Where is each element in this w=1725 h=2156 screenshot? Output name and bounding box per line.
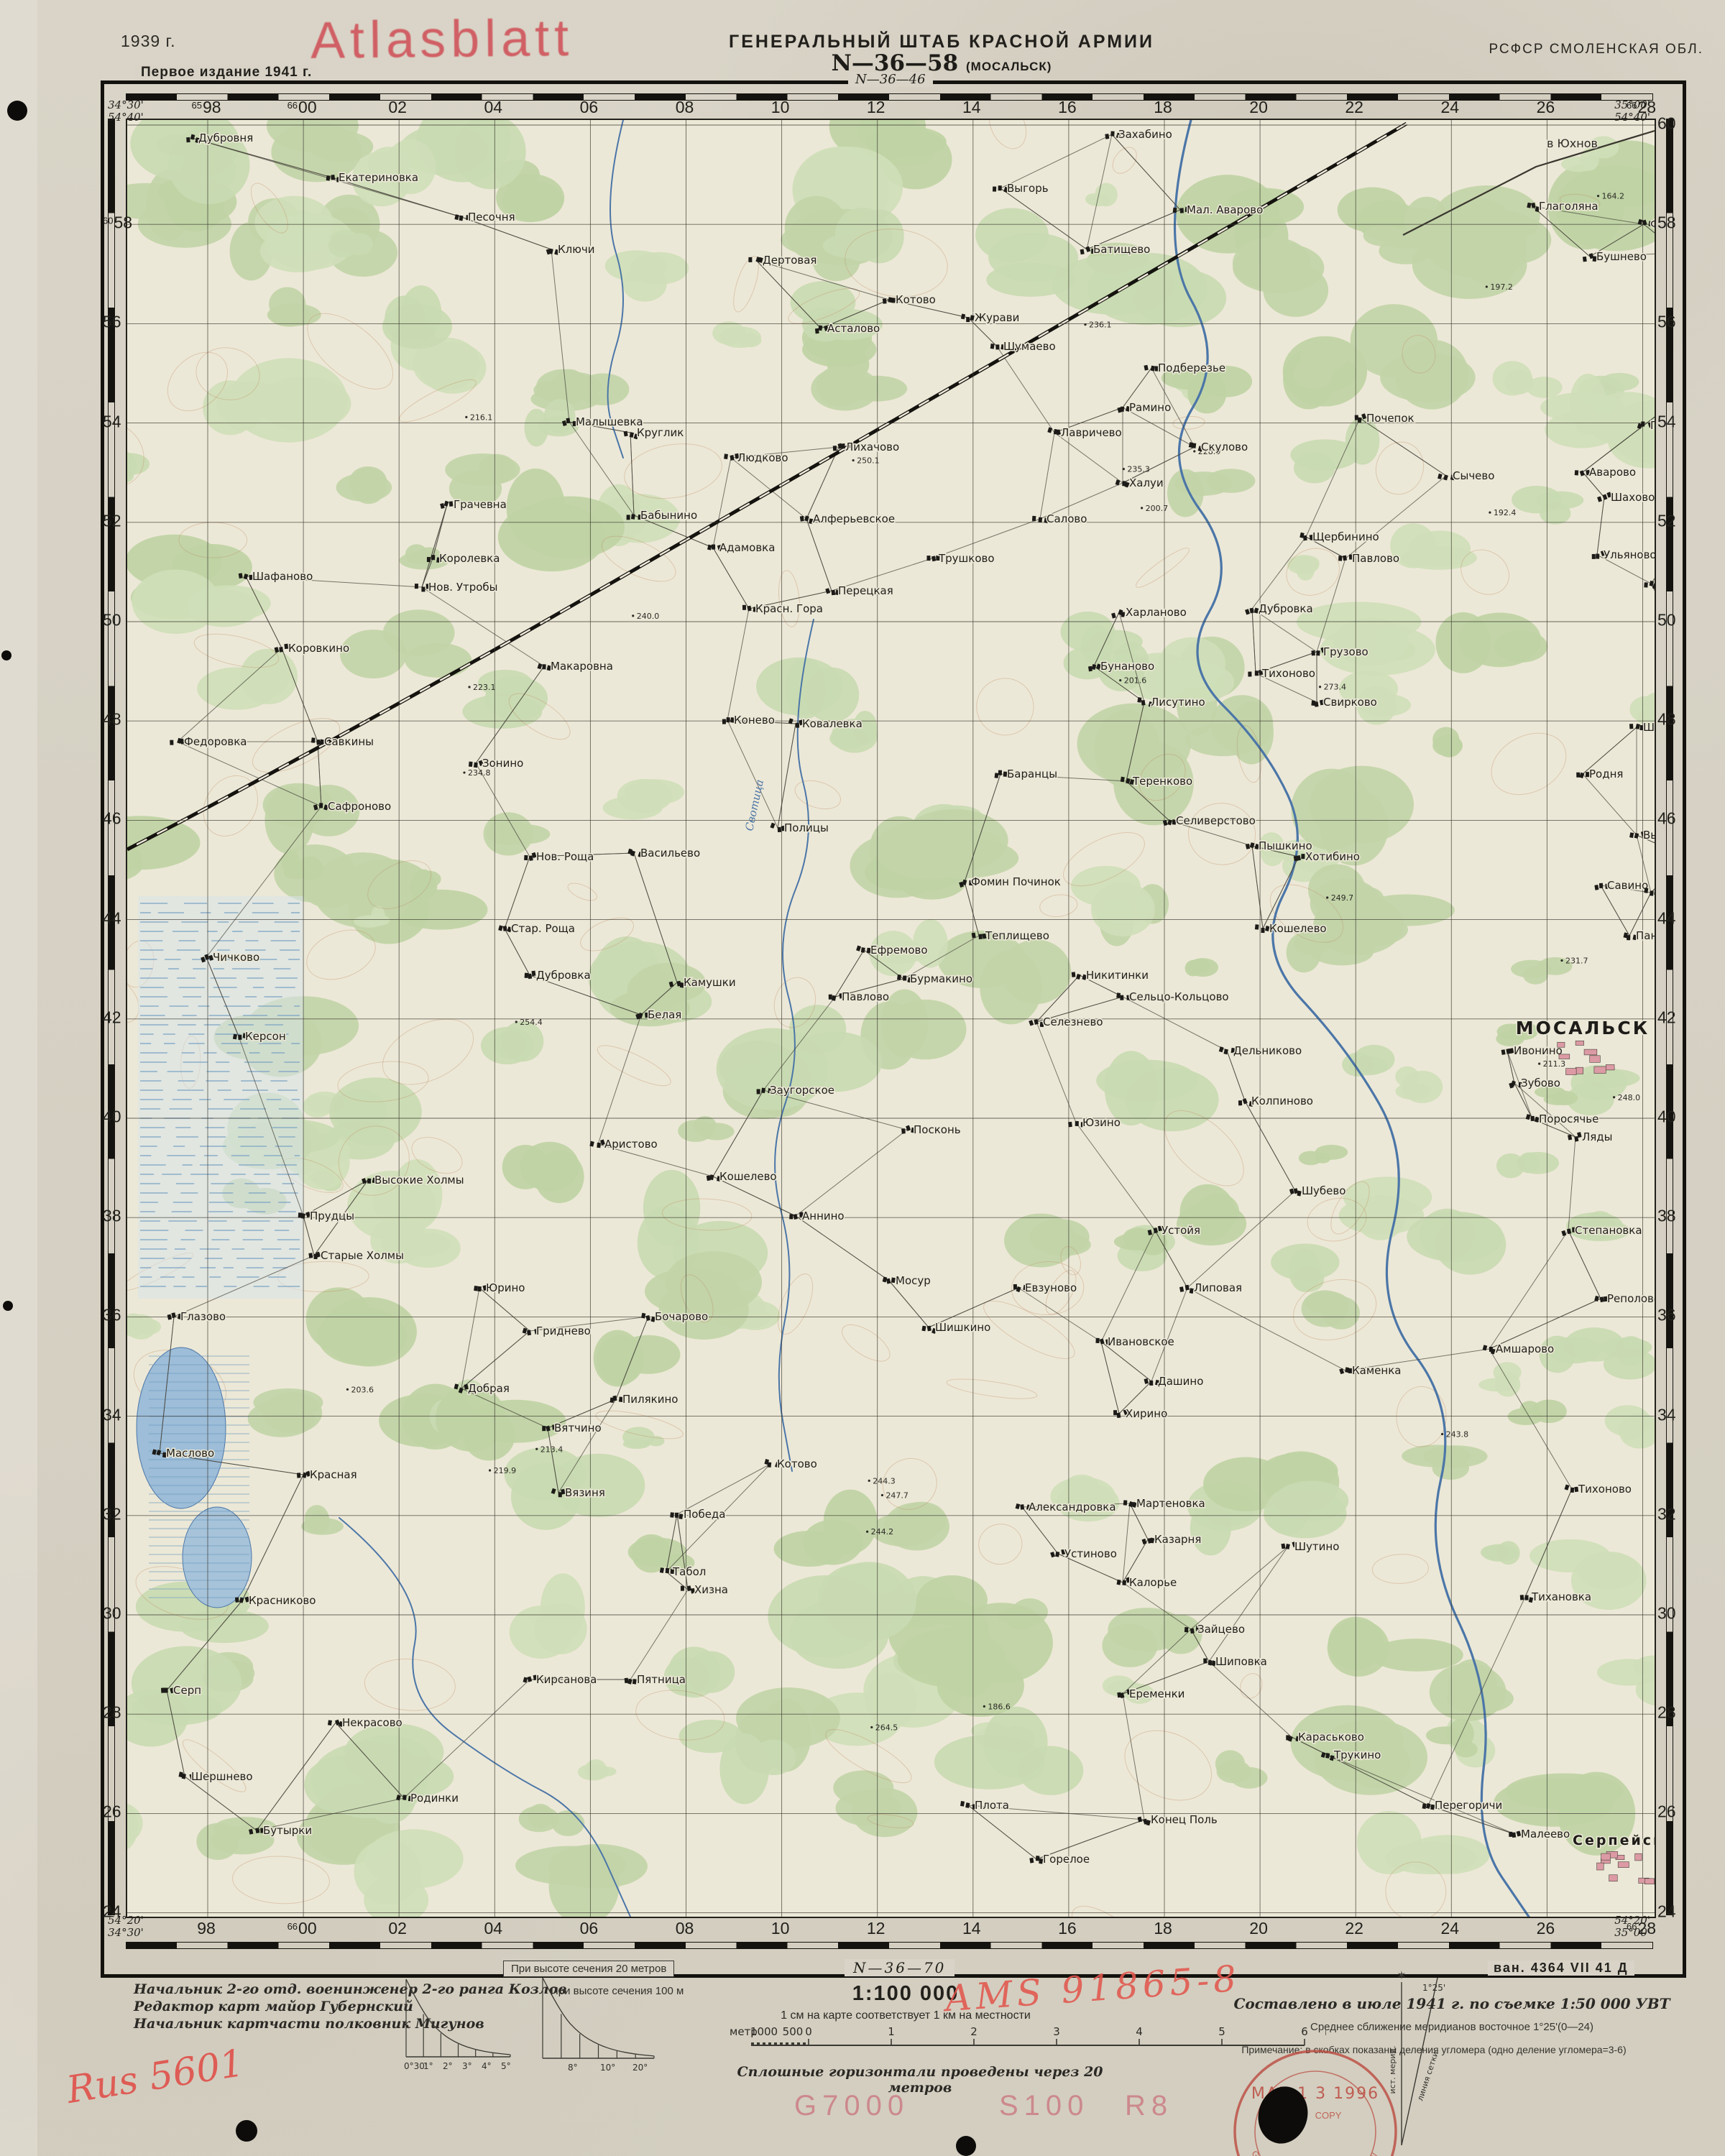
settlement-label: Хотибино	[1305, 850, 1360, 863]
river-label: Свотица	[742, 778, 766, 832]
svg-text:200.7: 200.7	[1146, 504, 1169, 513]
road-destination-label: в Юхнов	[1547, 137, 1598, 150]
settlement-label: Евзуново	[1025, 1281, 1077, 1294]
settlement-label: Грачевна	[454, 498, 507, 511]
svg-text:192.4: 192.4	[1494, 508, 1517, 517]
settlement-label: Батищево	[1093, 243, 1150, 256]
settlement-label: Высоково	[1643, 829, 1655, 842]
settlement-label: Почепок	[1366, 412, 1414, 425]
svg-text:216.1: 216.1	[470, 413, 493, 422]
slope-caption-20m: При высоте сечения 20 метров	[503, 1961, 674, 1977]
settlement-label: Чичково	[213, 951, 259, 964]
svg-text:✶: ✶	[1397, 1970, 1406, 1982]
grid-easting-top: 10	[771, 98, 790, 117]
grid-northing-left: 50	[103, 611, 121, 630]
settlement-label: Победа	[684, 1508, 726, 1521]
general-staff-title: ГЕНЕРАЛЬНЫЙ ШТАБ КРАСНОЙ АРМИИ	[690, 32, 1193, 52]
settlement-label: Керсон	[245, 1030, 286, 1043]
settlement-label: Бочарово	[655, 1310, 708, 1323]
settlement-label: Устиново	[1064, 1547, 1117, 1560]
settlement-label: Шиповка	[1215, 1655, 1267, 1668]
settlement-label: Полицы	[784, 821, 829, 834]
settlement-label: Круглик	[637, 426, 684, 439]
punch-hole	[1, 650, 11, 660]
settlement-label: Малеево	[1521, 1828, 1570, 1841]
settlement-label: Васильево	[640, 847, 700, 860]
grid-easting-bottom: 06	[580, 1919, 599, 1938]
settlement-label: Конево	[734, 714, 775, 727]
settlement-label: Коровкино	[288, 642, 349, 655]
settlement-label: Халуи	[1129, 476, 1164, 489]
settlement-label: Мартеновка	[1136, 1497, 1205, 1510]
grid-northing-left: 44	[103, 908, 121, 928]
settlement-label: Глаголяна	[1539, 200, 1598, 213]
accession-stamp-r8: R8	[1125, 2090, 1173, 2122]
settlement-label: Кошелево	[719, 1170, 777, 1183]
atlasblatt-stamp: Atlasblatt	[310, 9, 574, 70]
accession-stamp-g7000: G7000	[794, 2090, 909, 2122]
settlement-label: Шахово	[1611, 491, 1655, 504]
settlement-label: Дубровка	[536, 969, 591, 982]
settlement-label: Пышкино	[1259, 839, 1312, 852]
settlement-label: Свирково	[1323, 696, 1377, 709]
grid-northing-right: 28	[1657, 1703, 1676, 1723]
settlement-label: Фомин Починок	[971, 875, 1061, 888]
punch-hole	[236, 2120, 257, 2142]
settlement-label: Кошелево	[1269, 922, 1327, 935]
settlement-label: Асталово	[827, 322, 880, 335]
marsh-layer	[137, 896, 303, 1608]
settlement-label: Казарня	[1154, 1533, 1201, 1546]
grid-northing-left: 36	[103, 1306, 121, 1325]
settlement-label: Скулово	[1201, 441, 1248, 453]
town-label: МОСАЛЬСК	[1516, 1018, 1650, 1038]
town-Серпейск: Серпейск	[1573, 1833, 1655, 1884]
svg-text:244.3: 244.3	[873, 1476, 896, 1485]
grid-northing-left: 32	[103, 1504, 121, 1524]
settlement-label: Бурмакино	[910, 972, 972, 985]
grid-northing-right: 50	[1657, 611, 1676, 630]
settlement-label: Ковалевка	[802, 717, 862, 730]
settlement-label: Хирино	[1126, 1407, 1167, 1420]
slope-caption-100m: При высоте сечения 100 м	[551, 1985, 684, 1997]
svg-text:211.3: 211.3	[1543, 1059, 1566, 1069]
settlement-label: Журави	[975, 311, 1019, 324]
settlement-label: Каменка	[1352, 1364, 1401, 1377]
settlement-label: Теренково	[1132, 775, 1192, 788]
sheet-city: (МОСАЛЬСК)	[966, 60, 1052, 73]
settlement-label: Теплищево	[985, 929, 1049, 942]
settlement-label: Аристово	[604, 1138, 658, 1151]
svg-text:236.1: 236.1	[1089, 321, 1112, 330]
grid-easting-bottom: 18	[1154, 1919, 1172, 1938]
grid-northing-right: 26	[1657, 1802, 1676, 1822]
settlement-label: Еременки	[1129, 1687, 1184, 1700]
settlement-label: Захабино	[1118, 128, 1172, 141]
grid-easting-bottom: 04	[484, 1919, 503, 1938]
settlement-label: Ляды	[1582, 1130, 1613, 1143]
grid-easting-top: 18	[1154, 98, 1172, 117]
settlement-label: Никитинки	[1086, 969, 1149, 982]
settlement-label: Грузово	[1323, 645, 1368, 658]
svg-text:248.0: 248.0	[1618, 1093, 1641, 1102]
settlement-label: Бушнево	[1596, 250, 1647, 263]
library-date-stamp: MAR 1 3 1996COPYGEOGRAPHY & MAP DIVISION	[1207, 2047, 1423, 2156]
settlement-label: Екатериновка	[339, 171, 418, 184]
handwritten-accession: Rus 5601	[64, 2042, 247, 2112]
svg-text:197.2: 197.2	[1490, 282, 1513, 292]
grid-easting-top: 16	[1058, 98, 1077, 117]
settlement-label: Дашино	[1158, 1375, 1203, 1388]
settlement-label: Федоровка	[184, 735, 247, 748]
settlement-label: Перегоричи	[1435, 1799, 1502, 1812]
svg-text:500: 500	[783, 2025, 804, 2038]
settlement-label: Кирсанова	[536, 1673, 597, 1686]
grid-easting-top: 26	[1537, 98, 1555, 117]
settlement-label: Дубровня	[198, 132, 253, 144]
svg-text:250.1: 250.1	[857, 456, 880, 466]
settlement-label: Лисутино	[1151, 696, 1205, 709]
settlement-label: Малышевка	[576, 415, 643, 428]
settlement-label: Нов. Утробы	[428, 581, 498, 594]
map-year: 1939 г.	[121, 32, 176, 51]
settlement-label: Селезнево	[1043, 1015, 1103, 1028]
grid-northing-left: 46	[103, 809, 121, 829]
settlement-label: Зонино	[482, 757, 523, 770]
minute-ticks-top	[126, 93, 1653, 101]
settlement-label: Паньшино	[1636, 929, 1655, 942]
settlement-label: Шубево	[1302, 1184, 1345, 1197]
settlement-label: Адамовка	[719, 541, 775, 554]
settlement-label: Алферьевское	[813, 512, 895, 525]
settlement-label: Калорье	[1129, 1576, 1177, 1589]
settlement-label: Шафаново	[252, 570, 313, 583]
settlement-label: Вязиня	[565, 1486, 605, 1499]
grid-easting-top: 06	[580, 98, 599, 117]
grid-northing-right: 34	[1657, 1405, 1676, 1424]
settlement-label: Трушково	[938, 552, 995, 565]
settlement-label: Амшарово	[1496, 1342, 1554, 1355]
settlement-label: Котово	[777, 1457, 817, 1470]
settlement-label: Гриднево	[536, 1325, 591, 1337]
settlement-label: Людково	[737, 451, 788, 464]
settlement-label: Савино	[1607, 879, 1648, 892]
settlement-label: Дертовая	[763, 254, 816, 267]
settlement-label: Вятчино	[554, 1422, 602, 1434]
settlement-label: Прудцы	[310, 1210, 354, 1222]
settlement-label: Сафроново	[328, 800, 391, 813]
svg-text:1°25': 1°25'	[1422, 1983, 1445, 1993]
svg-text:201.6: 201.6	[1124, 676, 1147, 686]
settlement-label: Серп	[173, 1684, 201, 1697]
settlement-label: Нов. Роща	[536, 850, 594, 863]
settlement-label: Юрино	[486, 1281, 525, 1294]
settlement-label: Родня	[1589, 768, 1623, 780]
grid-northing-left: 52	[103, 511, 121, 530]
settlement-label: Горелое	[1043, 1853, 1090, 1866]
settlement-label: Зубово	[1521, 1077, 1560, 1089]
edition-label: Первое издание 1941 г.	[135, 65, 318, 80]
imprint-code: ван. 4364 VII 41 Д	[1488, 1961, 1634, 1976]
compiled-note: Составлено в июле 1941 г. по съемке 1:50…	[1186, 1995, 1718, 2012]
convergence-note: Среднее сближение меридианов восточное 1…	[1186, 2021, 1718, 2033]
grid-easting-bottom: 10	[771, 1919, 790, 1938]
grid-northing-right: 60	[1657, 114, 1676, 134]
settlement-label: Липовая	[1194, 1281, 1242, 1294]
grid-easting-bottom: 6600	[287, 1919, 317, 1938]
svg-text:2°: 2°	[443, 2061, 453, 2071]
grid-easting-bottom: 98	[197, 1919, 216, 1938]
settlement-label: Добрая	[468, 1382, 510, 1395]
settlement-label: Шершнево	[191, 1770, 253, 1783]
settlement-label: Камушки	[684, 976, 736, 989]
settlement-label: Шумаево	[1003, 340, 1056, 353]
grid-northing-left: 56	[103, 313, 121, 332]
sheet-number: N—36—58 (МОСАЛЬСК)	[690, 50, 1193, 76]
settlement-label: Щербинино	[1312, 530, 1379, 543]
svg-text:243.8: 243.8	[1446, 1430, 1469, 1439]
svg-text:219.9: 219.9	[494, 1466, 517, 1475]
svg-text:4°: 4°	[482, 2061, 492, 2071]
settlement-label: Хизна	[694, 1583, 728, 1596]
settlement-label: Табол	[672, 1565, 706, 1578]
grid-northing-left: 38	[103, 1207, 121, 1226]
settlement-label: Степановка	[1575, 1224, 1642, 1237]
settlement-label: Александровка	[1029, 1501, 1116, 1514]
grid-easting-bottom: 14	[962, 1919, 981, 1938]
settlement-label: Гнездилово	[1650, 419, 1655, 432]
settlement-label: Баранцы	[1007, 768, 1057, 780]
svg-text:1000: 1000	[750, 2025, 778, 2038]
settlement-label: Шахово-Княжево	[1643, 721, 1655, 734]
settlement-label: Выгорь	[1007, 182, 1049, 195]
grid-northing-right: 56	[1657, 313, 1676, 332]
settlement-label: Сельцо-Кольцово	[1129, 990, 1229, 1003]
grid-northing-left: 28	[103, 1703, 121, 1723]
settlement-label: Ивановское	[1108, 1335, 1174, 1348]
corner-coord-top-left: 34°30'54°40'	[108, 99, 144, 124]
grid-northing-right: 30	[1657, 1604, 1676, 1623]
svg-text:213.4: 213.4	[540, 1445, 563, 1454]
settlement-label: Трукино	[1333, 1749, 1381, 1761]
settlement-label: Тихоново	[1578, 1483, 1632, 1496]
settlement-label: Сычево	[1453, 469, 1494, 482]
svg-text:10°: 10°	[600, 2063, 615, 2073]
grid-northing-left: 26	[103, 1802, 121, 1822]
punch-hole	[956, 2136, 976, 2156]
svg-text:3: 3	[1053, 2025, 1060, 2038]
map-sheet: 1939 г. Atlasblatt ГЕНЕРАЛЬНЫЙ ШТАБ КРАС…	[0, 0, 1725, 2156]
forest-layer	[127, 120, 1655, 1917]
grid-northing-right: 38	[1657, 1207, 1676, 1226]
grid-easting-bottom: 16	[1058, 1919, 1077, 1938]
settlement-label: Поросячье	[1539, 1112, 1598, 1125]
svg-text:273.4: 273.4	[1324, 683, 1347, 692]
grid-northing-right: 24	[1657, 1902, 1676, 1921]
settlement-label: Заугорское	[770, 1084, 834, 1097]
svg-text:1: 1	[888, 2025, 895, 2038]
grid-easting-top: 6598	[191, 98, 221, 117]
settlement-label: Юзино	[1082, 1116, 1121, 1129]
grid-easting-bottom: 02	[388, 1919, 407, 1938]
grid-easting-bottom: 12	[867, 1919, 885, 1938]
grid-northing-right: 32	[1657, 1504, 1676, 1524]
grid-easting-top: 6600	[287, 98, 317, 117]
grid-northing-left: 30	[103, 1604, 121, 1623]
settlement-label: Пилякино	[622, 1393, 678, 1406]
svg-text:203.6: 203.6	[351, 1385, 374, 1394]
corner-coord-bottom-left: 54°20'34°30'	[108, 1915, 144, 1939]
region-label: РСФСР СМОЛЕНСКАЯ ОБЛ.	[1489, 42, 1703, 57]
settlement-label: Старые Холмы	[321, 1249, 404, 1262]
corner-coord-bottom-right: 54°20'35°00'	[1603, 1915, 1650, 1939]
settlement-label: Лавричево	[1061, 426, 1122, 439]
svg-text:235.3: 235.3	[1127, 465, 1150, 474]
grid-easting-top: 08	[676, 98, 694, 117]
settlement-label: Ключи	[558, 243, 594, 256]
grid-easting-top: 24	[1441, 98, 1460, 117]
settlement-label: Красн. Гора	[755, 602, 823, 615]
settlement-label: Караськово	[1298, 1731, 1364, 1743]
settlement-label: Некрасово	[342, 1716, 402, 1729]
settlement-label: Мосур	[896, 1274, 931, 1287]
settlement-label: Красниково	[249, 1594, 316, 1607]
svg-text:164.2: 164.2	[1602, 192, 1625, 201]
settlement-label: Реполово	[1607, 1292, 1655, 1305]
svg-text:20°: 20°	[632, 2063, 648, 2073]
grid-northing-right: 58	[1657, 213, 1676, 233]
settlement-label: Тихоново	[1261, 667, 1315, 680]
settlement-label: Тихановка	[1531, 1590, 1591, 1603]
grid-northing-right: 48	[1657, 710, 1676, 729]
settlement-label: Красная	[310, 1468, 357, 1481]
town-label: Серпейск	[1573, 1833, 1655, 1848]
grid-northing-left: 34	[103, 1405, 121, 1424]
settlement-label: Пятница	[637, 1673, 686, 1686]
settlement-label: Аннино	[802, 1210, 845, 1222]
settlement-label: Глазово	[180, 1310, 226, 1323]
settlement-label: Бунаново	[1100, 660, 1154, 673]
grid-northing-right: 44	[1657, 908, 1676, 928]
settlement-label: Мал. Аварово	[1187, 203, 1263, 216]
settlement-label: Филино	[1650, 218, 1655, 231]
settlement-label: Стар. Роща	[511, 922, 575, 935]
grid-northing-right: 54	[1657, 412, 1676, 431]
svg-text:240.0: 240.0	[637, 612, 660, 621]
grid-northing-right: 40	[1657, 1107, 1676, 1127]
grid-easting-top: 22	[1345, 98, 1363, 117]
grid-easting-top: 04	[484, 98, 503, 117]
svg-text:1°: 1°	[423, 2061, 433, 2071]
settlement-label: Королевка	[439, 552, 500, 565]
svg-text:247.7: 247.7	[885, 1491, 908, 1500]
settlement-label: Макаровна	[551, 660, 613, 673]
settlement-label: Котово	[896, 293, 936, 306]
settlement-label: Ивонино	[1514, 1044, 1563, 1057]
settlement-label: Высокие Холмы	[374, 1174, 464, 1187]
grid-easting-bottom: 20	[1249, 1919, 1268, 1938]
grid-northing-right: 46	[1657, 809, 1676, 829]
grid-easting-bottom: 22	[1345, 1919, 1363, 1938]
grid-northing-left: 6058	[103, 213, 132, 233]
punch-hole	[3, 1301, 13, 1311]
svg-text:264.5: 264.5	[875, 1723, 898, 1732]
svg-text:231.7: 231.7	[1565, 957, 1588, 966]
settlement-label: Ефремово	[870, 944, 928, 957]
settlement-label: Зайцево	[1197, 1623, 1245, 1636]
adjacent-sheet-south: N—36—70	[845, 1959, 954, 1976]
settlement-label: Павлово	[1352, 552, 1399, 565]
grid-northing-left: 40	[103, 1107, 121, 1127]
settlement-label: Белая	[648, 1008, 681, 1021]
settlement-label: Ульяново	[1604, 548, 1655, 561]
grid-easting-bottom: 24	[1441, 1919, 1460, 1938]
svg-text:3°: 3°	[462, 2061, 472, 2071]
svg-text:249.7: 249.7	[1331, 893, 1354, 903]
settlement-label: Лихачово	[845, 441, 899, 453]
settlement-label: Родинки	[410, 1792, 459, 1805]
settlement-label: Бутырки	[263, 1824, 312, 1837]
settlement-label: Савкины	[324, 735, 374, 748]
grid-northing-left: 54	[103, 412, 121, 431]
settlement-label: Подберезье	[1158, 361, 1225, 374]
settlement-label: Посконь	[914, 1123, 961, 1136]
accession-stamp-s100: S100	[999, 2090, 1089, 2122]
grid-northing-left: 42	[103, 1008, 121, 1027]
settlement-label: Плота	[975, 1799, 1009, 1812]
grid-easting-top: 20	[1249, 98, 1268, 117]
adjacent-sheet-north: N—36—46	[848, 72, 933, 87]
settlement-label: Харланово	[1126, 606, 1187, 619]
svg-text:8°: 8°	[568, 2063, 578, 2073]
svg-text:2: 2	[970, 2025, 977, 2038]
settlement-label: Колпиново	[1251, 1095, 1313, 1107]
minute-ticks-bottom	[126, 1942, 1653, 1949]
svg-text:COPY: COPY	[1315, 2110, 1342, 2121]
svg-text:0: 0	[805, 2025, 812, 2038]
settlement-label: Маслово	[166, 1447, 214, 1460]
settlement-label: Салово	[1046, 512, 1087, 525]
settlement-label: Перецкая	[838, 584, 893, 597]
settlement-label: Шишкино	[935, 1321, 990, 1334]
svg-text:254.4: 254.4	[520, 1018, 543, 1027]
punch-hole	[7, 101, 27, 121]
corner-coord-top-right: 35°00'54°40'	[1603, 99, 1650, 124]
settlement-label: Конец Поль	[1151, 1813, 1218, 1826]
grid-easting-top: 14	[962, 98, 981, 117]
settlement-label: Аварово	[1589, 466, 1636, 479]
svg-text:223.1: 223.1	[473, 683, 496, 692]
settlement-label: Песочня	[468, 211, 515, 224]
settlement-label: Селиверстово	[1176, 814, 1256, 827]
settlement-label: Шутино	[1294, 1540, 1339, 1553]
grid-northing-right: 42	[1657, 1008, 1676, 1027]
settlement-label: Павлово	[842, 990, 889, 1003]
settlement-label: Дубровка	[1259, 602, 1313, 615]
grid-northing-right: 36	[1657, 1306, 1676, 1325]
svg-text:5°: 5°	[501, 2061, 511, 2071]
settlement-label: Устойя	[1161, 1224, 1200, 1237]
grid-easting-top: 02	[388, 98, 407, 117]
svg-text:244.2: 244.2	[871, 1527, 894, 1537]
svg-text:4: 4	[1136, 2025, 1143, 2038]
grid-easting-bottom: 26	[1537, 1919, 1555, 1938]
svg-text:GEOGRAPHY & MAP DIVISION: GEOGRAPHY & MAP DIVISION	[1249, 2149, 1380, 2156]
grid-easting-top: 12	[867, 98, 885, 117]
settlement-label: Бабынино	[640, 509, 697, 522]
map-canvas[interactable]: 201.6273.4219.9248.0240.0234.8223.1247.7…	[126, 119, 1656, 1918]
grid-northing-right: 52	[1657, 511, 1676, 530]
